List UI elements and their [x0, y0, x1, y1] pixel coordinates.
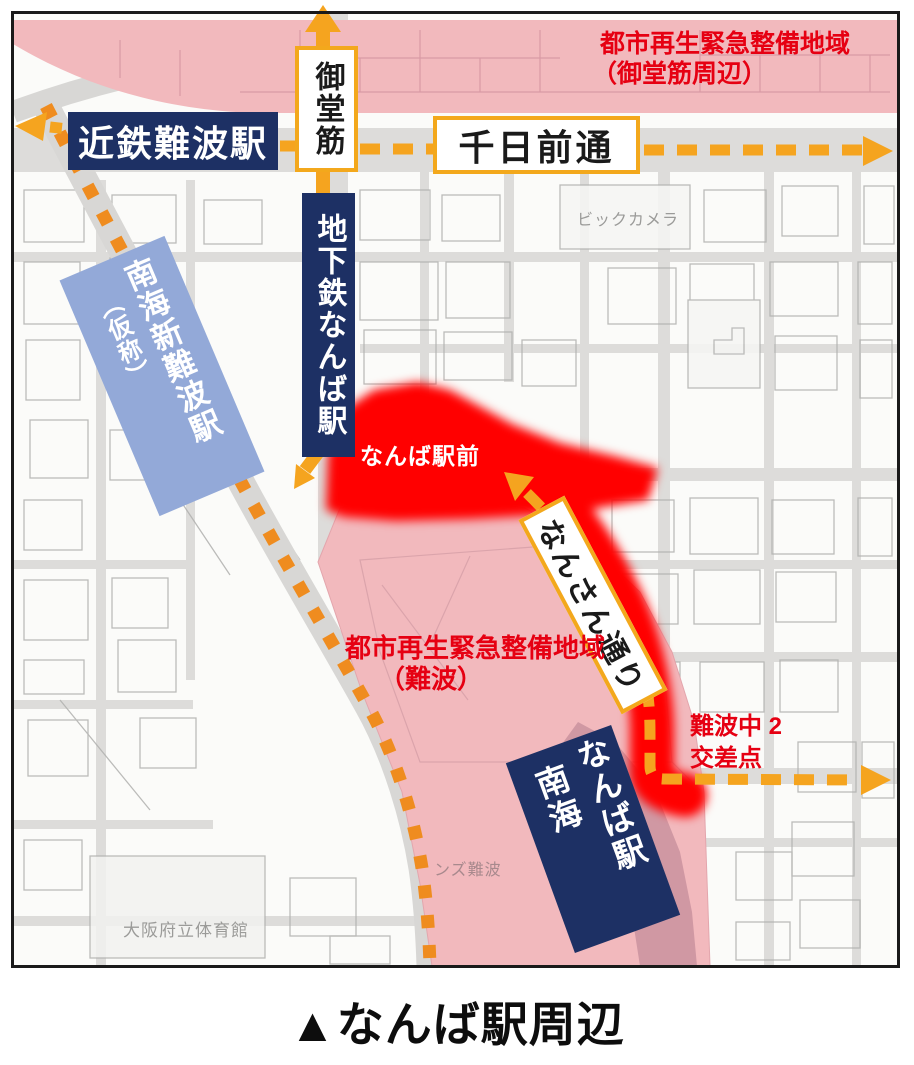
subway-namba-station-box: 地下鉄なんば駅: [302, 193, 355, 457]
midosuji-road-box: 御堂筋: [295, 46, 358, 172]
urban-zone-midosuji-label: 都市再生緊急整備地域 （御堂筋周辺）: [592, 29, 850, 89]
partial-building-label: ンズ難波: [434, 856, 502, 880]
sennichimae-road-box: 千日前通: [433, 116, 640, 174]
midosuji-road-label: 御堂筋: [305, 61, 349, 157]
urban-zone-namba-label: 都市再生緊急整備地域 （難波）: [345, 633, 605, 695]
nambanaka-intersection-label: 難波中 2 交差点: [690, 711, 782, 774]
namba-ekimae-label: なんば駅前: [360, 437, 480, 471]
namba-map-figure: ビックカメラ 大阪府立体育館 ンズ難波 近鉄難波駅 御堂筋 千日前通 地下鉄なん…: [0, 0, 914, 1065]
kintetsu-namba-station-box: 近鉄難波駅: [68, 112, 278, 170]
midosuji-connector-shaft: [316, 170, 330, 195]
figure-caption: ▲なんば駅周辺: [0, 986, 914, 1055]
osaka-pref-gym-label: 大阪府立体育館: [123, 916, 249, 941]
subway-namba-station-label: 地下鉄なんば駅: [307, 213, 351, 437]
bic-camera-label: ビックカメラ: [577, 206, 679, 230]
